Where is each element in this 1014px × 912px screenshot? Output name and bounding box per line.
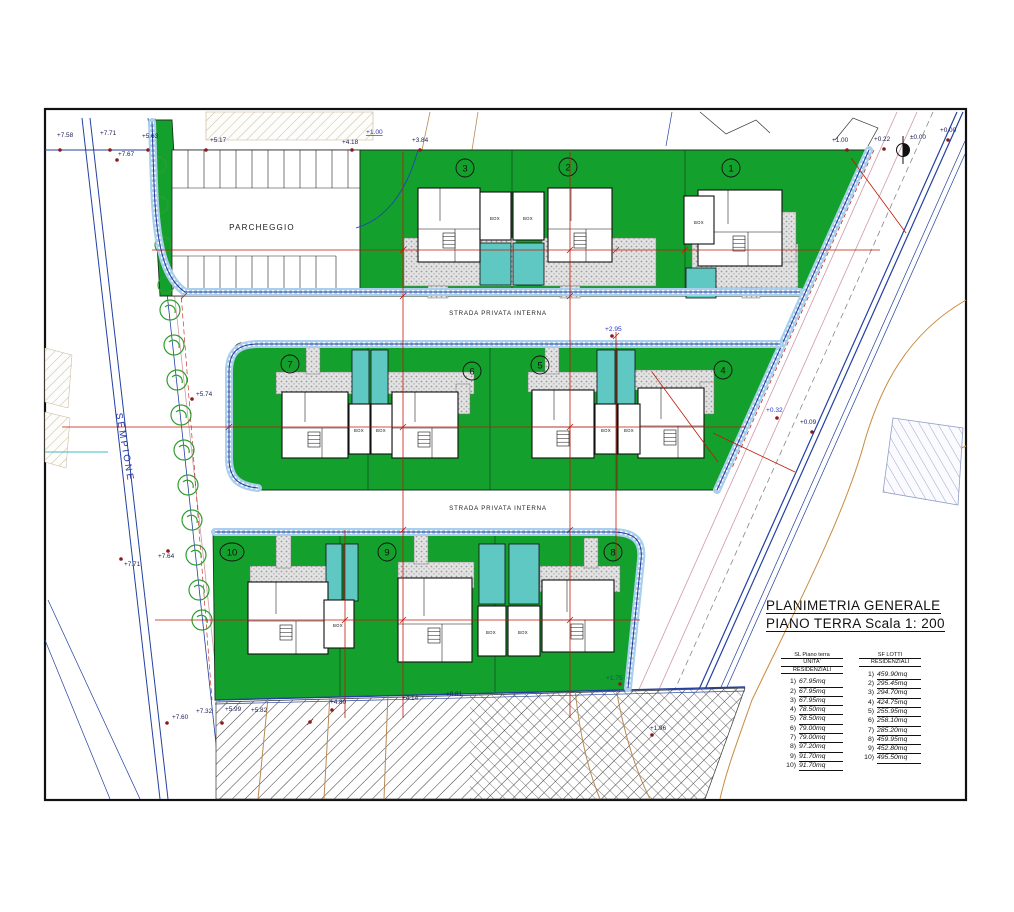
svg-text:10: 10 (227, 548, 238, 559)
table-sf-lots: SF LOTTI RESIDENZIALI 1)459.90mq 2)295.4… (859, 652, 921, 771)
box-label: BOX (490, 216, 500, 221)
table-row: 2)295.45mq (859, 680, 921, 689)
table-row: 1)67.95mq (781, 678, 843, 687)
box-label: BOX (376, 428, 386, 433)
elevation-label: +5.82 (251, 707, 268, 714)
private-road-label-1: STRADA PRIVATA INTERNA (449, 310, 547, 317)
elevation-label: +7.32 (196, 708, 213, 715)
site-plan-sheet: SEMPIONE (0, 0, 1014, 912)
elevation-label: +7.71 (100, 130, 117, 137)
house-unit-7 (282, 392, 348, 458)
site-plan-canvas: SEMPIONE (0, 0, 1014, 912)
elevation-label: +0.09 (800, 419, 817, 426)
elevation-label: +4.14 (402, 695, 419, 702)
table-row: 10)91.70mq (781, 762, 843, 771)
elevation-label: +1.96 (650, 725, 667, 732)
table-row: 3)294.70mq (859, 689, 921, 698)
box-label: BOX (333, 623, 343, 628)
elevation-label: +0.32 (766, 407, 783, 414)
plan-title-line2: PIANO TERRA Scala 1: 200 (766, 616, 945, 632)
elevation-label: +7.71 (124, 561, 141, 568)
private-road-label-2: STRADA PRIVATA INTERNA (449, 505, 547, 512)
house-unit-2 (548, 188, 612, 262)
box-label: BOX (354, 428, 364, 433)
table-row: 5)255.95mq (859, 708, 921, 717)
table-sf-header: SF LOTTI RESIDENZIALI (859, 652, 921, 667)
box-label: BOX (523, 216, 533, 221)
house-unit-5 (532, 390, 594, 458)
lots-row-2: BOX BOX BOX BOX 7 6 5 4 (229, 343, 783, 490)
table-row: 2)67.95mq (781, 688, 843, 697)
box-label: BOX (694, 220, 704, 225)
elevation-label: ±0.00 (910, 134, 926, 141)
elevation-label: +0.81 (446, 691, 463, 698)
elevation-label: +7.64 (158, 553, 175, 560)
svg-text:5: 5 (537, 361, 542, 372)
elevation-label: +7.60 (172, 714, 189, 721)
table-sl-units: SL Piano terra UNITA' RESIDENZIALI 1)67.… (781, 652, 843, 771)
elevation-label: +1.00 (832, 137, 849, 144)
elevation-label: +5.17 (210, 137, 227, 144)
table-row: 9)452.80mq (859, 745, 921, 754)
parking-label: PARCHEGGIO (229, 223, 295, 232)
elevation-label: +7.67 (118, 151, 135, 158)
lots-row-1: BOX BOX BOX 3 2 1 (356, 150, 869, 298)
table-row: 6)258.10mq (859, 717, 921, 726)
elevation-label: +0.00 (940, 127, 957, 134)
elevation-label: +1.00 (366, 129, 383, 136)
table-row: 10)495.50mq (859, 754, 921, 763)
svg-text:9: 9 (384, 548, 389, 559)
table-row: 8)97.20mq (781, 743, 843, 752)
house-unit-8 (542, 580, 614, 652)
elevation-label: +5.99 (225, 706, 242, 713)
svg-text:1: 1 (728, 164, 733, 175)
table-row: 1)459.90mq (859, 671, 921, 680)
elevation-label: +7.58 (57, 132, 74, 139)
svg-text:4: 4 (720, 366, 725, 377)
house-unit-10 (248, 582, 328, 654)
table-row: 4)78.50mq (781, 706, 843, 715)
box-label: BOX (601, 428, 611, 433)
svg-text:6: 6 (469, 367, 474, 378)
table-row: 6)79.00mq (781, 725, 843, 734)
elevation-label: +2.95 (605, 326, 622, 333)
house-unit-6 (392, 392, 458, 458)
table-sl-header: SL Piano terra UNITA' RESIDENZIALI (781, 652, 843, 674)
box-label: BOX (518, 630, 528, 635)
plan-title-line1: PLANIMETRIA GENERALE (766, 598, 941, 614)
svg-text:8: 8 (610, 548, 615, 559)
elevation-label: +1.75 (606, 675, 623, 682)
elevation-label: +5.74 (196, 391, 213, 398)
box-label: BOX (486, 630, 496, 635)
title-block: PLANIMETRIA GENERALE PIANO TERRA Scala 1… (766, 597, 945, 633)
table-row: 3)67.95mq (781, 697, 843, 706)
table-row: 7)79.00mq (781, 734, 843, 743)
elevation-label: +0.22 (874, 136, 891, 143)
elevation-label: +4.18 (342, 139, 359, 146)
box-label: BOX (624, 428, 634, 433)
table-row: 9)91.70mq (781, 753, 843, 762)
table-row: 4)424.75mq (859, 699, 921, 708)
svg-text:3: 3 (462, 164, 467, 175)
elevation-label: +4.80 (330, 699, 347, 706)
elevation-label: +5.63 (142, 133, 159, 140)
area-tables: SL Piano terra UNITA' RESIDENZIALI 1)67.… (781, 652, 921, 771)
table-row: 5)78.50mq (781, 715, 843, 724)
table-row: 7)285.20mq (859, 727, 921, 736)
house-unit-3 (418, 188, 480, 262)
elevation-label: +3.84 (412, 137, 429, 144)
svg-text:7: 7 (287, 360, 292, 371)
table-row: 8)459.95mq (859, 736, 921, 745)
